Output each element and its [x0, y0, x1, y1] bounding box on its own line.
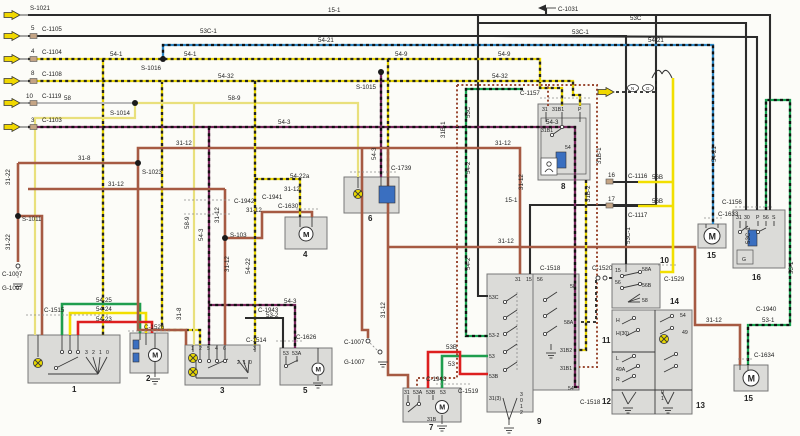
- label-31-12: 31-12: [214, 207, 221, 223]
- label-54-23: 54-23: [96, 316, 112, 323]
- component-number-10: 10: [660, 256, 669, 265]
- contact-icon: [223, 359, 226, 362]
- pin-box-16: [606, 179, 613, 184]
- component-number-11: 11: [602, 336, 611, 345]
- splice-dot-icon: [222, 235, 228, 241]
- connector-circle-icon: [16, 264, 20, 268]
- pin-label-31: 31: [542, 107, 548, 113]
- pin-label-54: 54: [568, 386, 574, 392]
- pin-label-54: 54: [680, 313, 686, 319]
- pin-label-L: L: [616, 356, 619, 362]
- pin-label-56: 56: [763, 215, 769, 221]
- label-C-1108: C-1108: [42, 71, 62, 78]
- connector-pin-box: [30, 57, 37, 62]
- pin-label-31B1: 31B1: [560, 366, 572, 372]
- label-58-9: 58-9: [228, 95, 241, 102]
- label-C-1156: C-1156: [722, 199, 742, 206]
- label-54-3: 54-3: [198, 228, 205, 241]
- label-54-9: 54-9: [395, 51, 408, 58]
- contact-icon: [543, 332, 546, 335]
- contact-icon: [543, 298, 546, 301]
- label-54-3: 54-3: [371, 147, 378, 160]
- relay-element-icon: [133, 353, 139, 362]
- label-31-12: 31-12: [108, 181, 124, 188]
- label-C-1518: C-1518: [580, 399, 601, 406]
- component-number-15: 15: [744, 394, 753, 403]
- label-54-21: 54-21: [648, 37, 664, 44]
- pin-label-2: 2: [199, 346, 202, 352]
- label-C-1520: C-1520: [592, 265, 613, 272]
- contact-icon: [674, 364, 677, 367]
- component-box-11: [612, 310, 692, 414]
- label-31B-2: 31B-2: [585, 185, 592, 202]
- label-C-1157: C-1157: [520, 90, 540, 97]
- label-C-1739: C-1739: [391, 165, 412, 172]
- label-31-12: 31-12: [284, 186, 300, 193]
- label-17: 17: [608, 196, 615, 203]
- label-54-1: 54-1: [184, 51, 197, 58]
- label-31-22: 31-22: [5, 234, 12, 250]
- pin-label-H: H: [616, 318, 620, 324]
- connector-pin-box: [30, 34, 37, 39]
- connector-pin-box: [30, 125, 37, 130]
- contact-icon: [284, 364, 287, 367]
- relay-element-icon: [133, 340, 139, 349]
- component-number-7: 7: [429, 423, 434, 432]
- label-54-3: 54-3: [546, 119, 559, 126]
- pin-label-53A: 53A: [413, 390, 423, 396]
- pin-label-53C: 53C: [489, 295, 499, 301]
- contact-icon: [198, 359, 201, 362]
- contact-icon: [738, 230, 741, 233]
- pin-label-5: 5: [207, 346, 210, 352]
- label-S-1015: S-1015: [356, 84, 377, 91]
- pin-label-4: 4: [215, 346, 218, 352]
- label-15-1: 15-1: [328, 7, 341, 14]
- label-31-12: 31-12: [380, 302, 387, 318]
- label-S-1023: S-1023: [142, 169, 163, 176]
- contact-icon: [620, 274, 623, 277]
- label-C-1633: C-1633: [718, 211, 739, 218]
- label-31-12: 31-12: [224, 256, 231, 272]
- label-C-1941: C-1941: [262, 194, 283, 201]
- component-number-6: 6: [368, 214, 373, 223]
- label-31-8: 31-8: [176, 307, 183, 320]
- label-C-1514: C-1514: [246, 337, 267, 344]
- label-S-1014: S-1014: [110, 110, 131, 117]
- motor-letter: M: [439, 404, 445, 412]
- splice-dot-icon: [378, 69, 384, 75]
- pin-label-P: P: [578, 107, 582, 113]
- pin-label-31B1: 31B1: [552, 107, 564, 113]
- pin-label-53: 53: [489, 354, 495, 360]
- pin-label-54: 54: [565, 145, 571, 151]
- label-58: 58: [64, 95, 71, 102]
- label-53C-1: 53C-1: [572, 29, 589, 36]
- label-C-1104: C-1104: [42, 49, 62, 56]
- component-number-16: 16: [752, 273, 761, 282]
- component-number-13: 13: [696, 401, 705, 410]
- label-53-2: 53-2: [266, 312, 279, 319]
- label-C-1940: C-1940: [756, 306, 777, 313]
- label-53C-1: 53C-1: [745, 227, 752, 244]
- label-54-22: 54-22: [245, 258, 252, 274]
- pin-label-15: 15: [615, 268, 621, 274]
- pin-label-53B: 53B: [489, 374, 499, 380]
- label-S-1011: S-1011: [22, 216, 42, 223]
- contact-icon: [632, 354, 635, 357]
- contact-icon: [670, 314, 673, 317]
- label-C-1116: C-1116: [628, 173, 648, 180]
- component-number-8: 8: [561, 182, 566, 191]
- label-C-1630: C-1630: [278, 203, 299, 210]
- pin-label-G: G: [742, 257, 746, 263]
- pin-label-1: 1: [99, 350, 102, 356]
- label-54-25: 54-25: [96, 297, 112, 304]
- motor-letter: M: [748, 373, 755, 383]
- label-3: 3: [31, 117, 35, 124]
- label-31-12: 31-12: [246, 207, 262, 214]
- contact-icon: [503, 300, 506, 303]
- splice-dot-icon: [15, 213, 21, 219]
- pin-label-31(3): 31(3): [489, 396, 501, 402]
- contact-icon: [503, 368, 506, 371]
- pin-label-53: 53: [283, 351, 289, 357]
- component-number-9: 9: [537, 417, 542, 426]
- label-54-22a: 54-22a: [290, 173, 310, 180]
- label-54-1: 54-1: [110, 51, 123, 58]
- contact-icon: [417, 402, 420, 405]
- label-S-103: S-103: [230, 232, 247, 239]
- pin-label-31: 31: [515, 277, 521, 283]
- label-31-12: 31-12: [498, 238, 514, 245]
- relay-element-icon: [379, 186, 395, 203]
- motor-letter: M: [152, 352, 158, 360]
- contact-icon: [76, 350, 79, 353]
- component-number-2: 2: [146, 374, 151, 383]
- component-number-12: 12: [602, 397, 611, 406]
- label-C-1526: C-1526: [144, 324, 165, 331]
- motor-letter: M: [315, 367, 321, 374]
- contact-icon: [503, 332, 506, 335]
- pin-label-56: 56: [615, 280, 621, 286]
- connector-circle-icon: [603, 276, 607, 280]
- contact-icon: [60, 350, 63, 353]
- pin-label-58: 58: [642, 298, 648, 304]
- pin-label-53B: 53B: [426, 390, 436, 396]
- contact-icon: [632, 374, 635, 377]
- gauge-letter: N: [631, 86, 634, 91]
- label-C-1007: C-1007: [2, 271, 23, 278]
- pin-label-58A: 58A: [642, 267, 652, 273]
- label-54-9: 54-9: [498, 51, 511, 58]
- component-number-15: 15: [707, 251, 716, 260]
- label-31B-1: 31B-1: [440, 121, 447, 138]
- label-53C-1: 53C-1: [625, 227, 632, 244]
- motor-letter: M: [709, 231, 716, 241]
- relay-element-icon: [556, 152, 566, 168]
- label-15-1: 15-1: [505, 197, 518, 204]
- contact-icon: [215, 359, 218, 362]
- contact-icon: [543, 314, 546, 317]
- label-56B: 56B: [652, 174, 663, 181]
- label-56B: 56B: [652, 198, 663, 205]
- label-C-1103: C-1103: [42, 117, 62, 124]
- component-number-14: 14: [670, 297, 679, 306]
- pin-label-56B: 56B: [642, 283, 652, 289]
- label-31-12: 31-12: [518, 174, 525, 190]
- contact-icon: [632, 316, 635, 319]
- pin-label-6: 6: [223, 346, 226, 352]
- label-C-1007: C-1007: [344, 339, 365, 346]
- label-C-1515: C-1515: [44, 307, 65, 314]
- label-54-3: 54-3: [278, 119, 291, 126]
- label-5: 5: [31, 25, 35, 32]
- label-31-12: 31-12: [706, 317, 722, 324]
- contact-icon: [54, 366, 57, 369]
- label-31-22: 31-22: [5, 169, 12, 185]
- pin-label-49A: 49A: [616, 367, 626, 373]
- label-C-1634: C-1634: [754, 352, 775, 359]
- pin-label-49: 49: [682, 330, 688, 336]
- splice-dot-icon: [135, 160, 141, 166]
- connector-pin-box: [30, 101, 37, 106]
- label-53-1: 53-1: [762, 317, 775, 324]
- pin-label-30: 30: [744, 215, 750, 221]
- pin-label-3: 3: [85, 350, 88, 356]
- label-31B-1: 31B-1: [596, 147, 603, 164]
- gauge-letter: G: [646, 86, 650, 91]
- pin-label-P: P: [756, 215, 760, 221]
- splice-dot-icon: [132, 100, 138, 106]
- label-C-1626: C-1626: [296, 334, 317, 341]
- pin-label-1: 1: [661, 396, 664, 402]
- label-S-1016: S-1016: [141, 65, 162, 72]
- label-53C: 53C: [465, 106, 472, 118]
- contact-icon: [636, 328, 639, 331]
- label-53C: 53C: [630, 15, 642, 22]
- label-C-1529: C-1529: [664, 276, 685, 283]
- contact-icon: [503, 350, 506, 353]
- component-box-9: [533, 274, 579, 390]
- pin-label-53-2: 53-2: [489, 333, 499, 339]
- pin-label-53A: 53A: [292, 351, 302, 357]
- pin-label-0: 0: [106, 350, 109, 356]
- label-C-1518: C-1518: [540, 265, 561, 272]
- label-58-9: 58-9: [184, 216, 191, 229]
- label-54-2: 54-2: [465, 257, 472, 270]
- label-31-8: 31-8: [78, 155, 91, 162]
- label-54-32: 54-32: [218, 73, 234, 80]
- pin-label-58A: 58A: [564, 320, 574, 326]
- label-53: 53: [448, 361, 455, 368]
- splice-dot-icon: [160, 56, 166, 62]
- contact-icon: [620, 286, 623, 289]
- label-54-2: 54-2: [465, 161, 472, 174]
- pin-label-53: 53: [440, 390, 446, 396]
- connector-circle-icon: [366, 339, 370, 343]
- label-C-1117: C-1117: [628, 212, 648, 219]
- label-31-12: 31-12: [495, 140, 511, 147]
- label-8: 8: [31, 70, 35, 77]
- connector-circle-icon: [378, 350, 382, 354]
- pin-label-31: 31: [404, 390, 410, 396]
- contact-icon: [560, 125, 563, 128]
- contact-icon: [68, 350, 71, 353]
- label-C-1031: C-1031: [558, 6, 579, 13]
- contact-icon: [636, 364, 639, 367]
- pin-label-R: R: [616, 377, 620, 383]
- contact-icon: [670, 326, 673, 329]
- pin-label-2: 2: [237, 360, 240, 366]
- label-54-21: 54-21: [711, 146, 718, 162]
- component-number-3: 3: [220, 386, 225, 395]
- pin-label-1: 1: [191, 346, 194, 352]
- label-C-1519: C-1519: [458, 388, 479, 395]
- label-31-12: 31-12: [176, 140, 192, 147]
- label-G-1007: G-1007: [2, 285, 23, 292]
- pin-label-S: S: [772, 215, 776, 221]
- pin-label-2: 2: [92, 350, 95, 356]
- label-C-1942: C-1942: [234, 198, 255, 205]
- contact-icon: [674, 352, 677, 355]
- pin-label-0: 0: [249, 360, 252, 366]
- label-10: 10: [26, 93, 33, 100]
- component-number-4: 4: [303, 250, 308, 259]
- label-G-1007: G-1007: [344, 359, 365, 366]
- pin-label-15: 15: [526, 277, 532, 283]
- pin-label-3: 3: [253, 346, 256, 352]
- pin-label-1: 1: [243, 360, 246, 366]
- connector-circle-icon: [596, 276, 600, 280]
- connector-pin-box: [30, 79, 37, 84]
- pin-label-31B1: 31B1: [541, 128, 553, 134]
- contact-icon: [406, 402, 409, 405]
- label-C-1943: C-1943: [426, 376, 447, 383]
- pin-label-31B2: 31B2: [560, 348, 572, 354]
- label-54-3: 54-3: [284, 298, 297, 305]
- wiring-diagram-canvas: NG32101M21254632103M4M5353A56M3153A53B53…: [0, 0, 800, 436]
- contact-icon: [756, 230, 759, 233]
- pin-box-17: [606, 203, 613, 208]
- label-S-1021: S-1021: [30, 5, 51, 12]
- motor-letter: M: [303, 230, 309, 239]
- label-54-21: 54-21: [318, 37, 334, 44]
- label-C-1119: C-1119: [42, 93, 62, 100]
- component-number-5: 5: [303, 386, 308, 395]
- contact-icon: [207, 359, 210, 362]
- label-C-1105: C-1105: [42, 26, 62, 33]
- pin-label-2: 2: [520, 410, 523, 416]
- label-53B: 53B: [446, 344, 457, 351]
- label-53C-1: 53C-1: [200, 28, 217, 35]
- pin-label-58: 58: [570, 284, 576, 290]
- pin-label-H(30): H(30): [616, 331, 629, 337]
- label-54-24: 54-24: [96, 306, 112, 313]
- component-number-1: 1: [72, 385, 77, 394]
- pin-label-56: 56: [537, 277, 543, 283]
- label-54-32: 54-32: [492, 73, 508, 80]
- label-53-1: 53-1: [788, 261, 795, 274]
- label-16: 16: [608, 172, 615, 179]
- label-4: 4: [31, 48, 35, 55]
- contact-icon: [503, 316, 506, 319]
- wiring-diagram-page: NG32101M21254632103M4M5353A56M3153A53B53…: [0, 0, 800, 436]
